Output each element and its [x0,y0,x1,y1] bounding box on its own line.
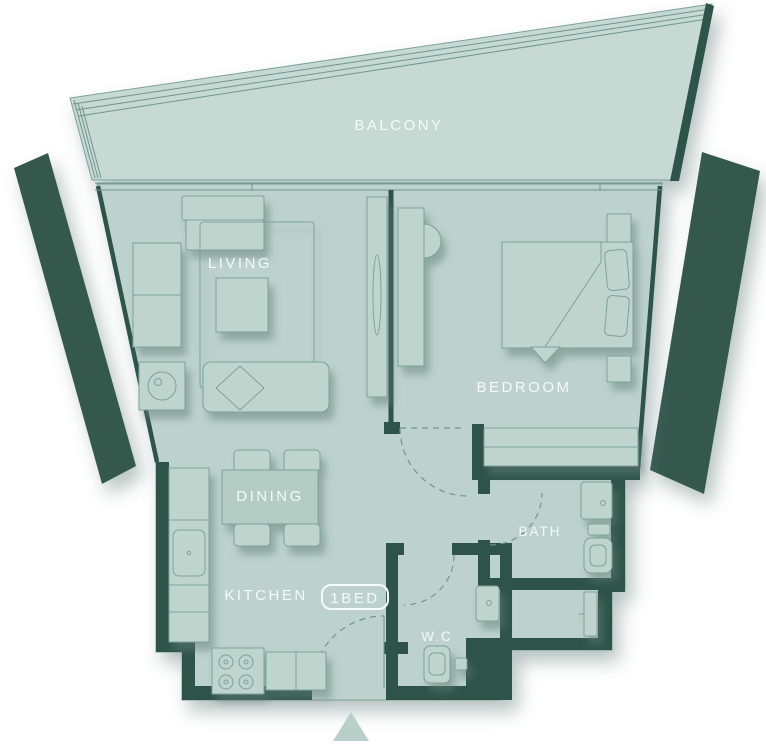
sofa-seat [186,220,264,250]
shower [581,482,612,519]
balcony-floor [70,4,712,180]
sofa-back [182,196,264,220]
floor-plan-page: BALCONY LIVING BEDROOM DINING KITCHEN BA… [0,0,766,745]
balcony-area [70,3,714,181]
dining-chair [234,524,270,546]
wc-label: W.C [421,629,453,644]
wc-top-wall-stub-left [386,543,404,555]
bath-sink [588,524,610,535]
right-fin [650,152,760,494]
dining-chair [284,524,320,546]
kitchen-label: KITCHEN [224,587,307,604]
nightstand [607,356,631,382]
side-table [139,362,185,410]
wardrobe-bottom-wall [472,466,640,480]
stove [212,648,264,694]
bath-toilet [584,538,612,573]
corridor-bottom-wall [500,638,612,650]
balcony-label: BALCONY [354,117,443,134]
dining-chair [234,450,270,472]
corridor-door-panel [584,592,597,636]
bath-label: BATH [518,524,561,539]
coffee-table [216,278,268,332]
pillow [604,249,629,291]
bedroom-desk [398,208,424,366]
hall-top-wall-stub [384,422,400,434]
bath-left-wall-stub-bottom [478,540,490,590]
pillow [604,295,629,337]
bath-right-wall [611,462,625,592]
unit-badge-label: 1BED [330,590,379,607]
floor-plan-drawing: BALCONY LIVING BEDROOM DINING KITCHEN BA… [0,0,766,745]
wc-left-wall [386,543,398,700]
living-label: LIVING [208,255,272,272]
wc-right-wall [500,553,512,650]
wc-toilet [424,646,450,683]
tv-console [367,197,387,397]
dining-label: DINING [236,488,304,505]
entry-arrow-icon [333,712,369,741]
wc-bottom-wall [386,686,476,700]
wc-basin [476,586,499,621]
dining-chair [284,450,320,472]
bath-bottom-wall [490,578,611,590]
wc-sink [455,658,467,670]
bedroom-label: BEDROOM [476,379,571,396]
